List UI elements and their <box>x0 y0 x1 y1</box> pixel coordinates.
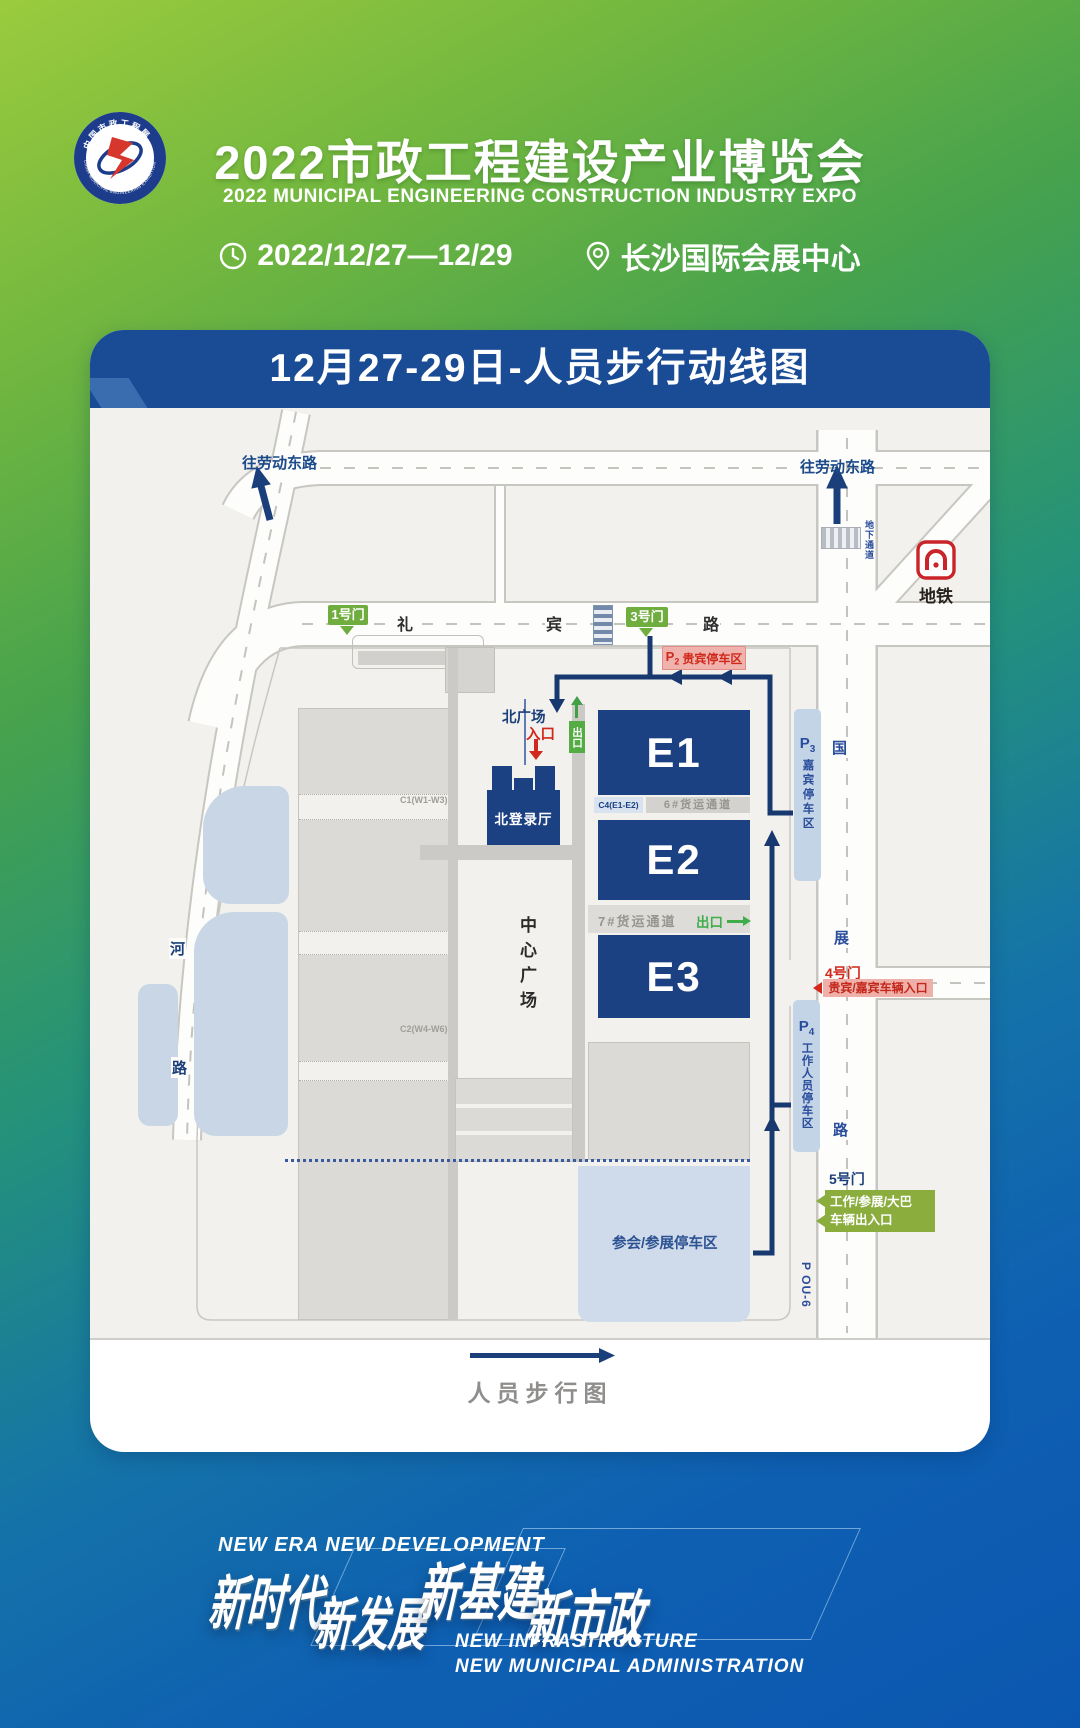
event-info-row: 2022/12/27—12/29 长沙国际会展中心 <box>0 234 1080 278</box>
north-entry-label: 入口 <box>526 723 555 744</box>
exit-east: 出口 <box>696 911 751 931</box>
exit-arrow-shaft <box>575 705 578 718</box>
event-date: 2022/12/27—12/29 <box>219 234 512 278</box>
gate-4-pointer <box>813 982 822 994</box>
freight6-label: 6#货运通道 <box>646 797 750 813</box>
event-date-text: 2022/12/27—12/29 <box>257 239 512 273</box>
entry-arrow-head <box>529 751 543 760</box>
river-road-char: 河 <box>169 938 186 959</box>
slogan-2: 新发展 <box>312 1578 429 1662</box>
route-north <box>557 677 793 813</box>
central-plaza-label: 中心广场 <box>514 916 539 1016</box>
legend-arrow-icon <box>465 1348 615 1363</box>
footer-en-b1: NEW INFRASTRUCTURE <box>455 1631 698 1653</box>
site-map: 北登录厅 E1 E2 E3 P3 嘉宾停车区 P4 工作人员停车区 <box>90 408 990 1340</box>
exit-arrow-head <box>571 696 583 705</box>
guozhan-char: 展 <box>833 927 850 948</box>
entry-arrow-shaft <box>534 739 538 751</box>
slogan-1: 新时代 <box>206 1556 326 1641</box>
map-card: 12月27-29日-人员步行动线图 <box>90 330 990 1452</box>
route-arrow-down <box>549 699 565 713</box>
page-title: 2022市政工程建设产业博览会 <box>0 124 1080 193</box>
p2-code: P2 <box>666 649 680 667</box>
parking-pou6-label: P OU-6 <box>799 1262 813 1322</box>
gate-5-pointer <box>816 1215 825 1227</box>
gate-5-desc-line2: 车辆出入口 <box>830 1211 930 1229</box>
gate-5-desc: 工作/参展/大巴 车辆出入口 <box>825 1190 935 1232</box>
libin-char: 宾 <box>545 611 563 635</box>
c4-label: C4(E1-E2) <box>594 797 643 813</box>
guozhan-char: 国 <box>831 737 848 758</box>
west-hall-c2-label: C2(W4-W6) <box>400 1024 448 1034</box>
route-south <box>753 835 772 1253</box>
river-road-char: 路 <box>171 1057 188 1078</box>
footer-en-b2: NEW MUNICIPAL ADMINISTRATION <box>455 1656 804 1678</box>
gate-5-name: 5号门 <box>829 1169 865 1189</box>
to-laodong-left-label: 往劳动东路 <box>242 452 317 473</box>
expo-poster: 中国市政工程展 CHINA MUNICIPAL ENGINEERING EXHI… <box>0 0 1080 1728</box>
event-venue-text: 长沙国际会展中心 <box>621 234 861 278</box>
libin-char: 礼 <box>396 611 414 635</box>
p2-name: 贵宾停车区 <box>682 650 742 667</box>
legend-label: 人员步行图 <box>90 1374 990 1408</box>
gate-4-desc: 贵宾/嘉宾车辆入口 <box>823 979 933 997</box>
exit-east-label: 出口 <box>696 911 723 931</box>
page-subtitle: 2022 MUNICIPAL ENGINEERING CONSTRUCTION … <box>0 186 1080 208</box>
exit-east-arrow-head <box>743 916 751 926</box>
map-banner-title: 12月27-29日-人员步行动线图 <box>90 330 990 408</box>
gate-3-pointer <box>639 628 653 637</box>
gate-5-desc-line1: 工作/参展/大巴 <box>830 1193 930 1211</box>
gate-3: 3号门 <box>626 607 668 627</box>
freight7-label: 7#货运通道 <box>598 911 676 930</box>
laodong-arrow-left <box>261 486 270 520</box>
gate-1: 1号门 <box>328 605 368 625</box>
event-venue: 长沙国际会展中心 <box>585 234 861 278</box>
parking-p2-label: P2 贵宾停车区 <box>662 646 746 670</box>
route-arrow-left <box>667 669 682 685</box>
legend: 人员步行图 <box>90 1348 990 1408</box>
metro-icon <box>916 540 956 580</box>
exit-east-arrow-shaft <box>727 920 743 923</box>
clock-icon <box>219 242 247 270</box>
gate-5-pointer <box>816 1195 825 1207</box>
underpass-label: 地下通道 <box>862 520 876 560</box>
slogan-3: 新基建 <box>416 1543 542 1633</box>
metro-label: 地铁 <box>910 582 962 607</box>
route-arrow-up <box>764 830 780 846</box>
map-banner: 12月27-29日-人员步行动线图 <box>90 330 990 408</box>
to-laodong-right-label: 往劳动东路 <box>800 456 875 477</box>
crosswalk <box>593 605 613 645</box>
libin-char: 路 <box>702 611 720 635</box>
exit-north-label: 出口 <box>569 721 585 753</box>
gate-1-pointer <box>340 626 354 635</box>
underpass-crosswalk <box>821 527 861 549</box>
route-arrow-up <box>764 1115 780 1131</box>
route-arrow-left <box>717 669 732 685</box>
location-pin-icon <box>585 241 611 271</box>
west-hall-c1-label: C1(W1-W3) <box>400 795 448 805</box>
guozhan-char: 路 <box>832 1119 849 1140</box>
